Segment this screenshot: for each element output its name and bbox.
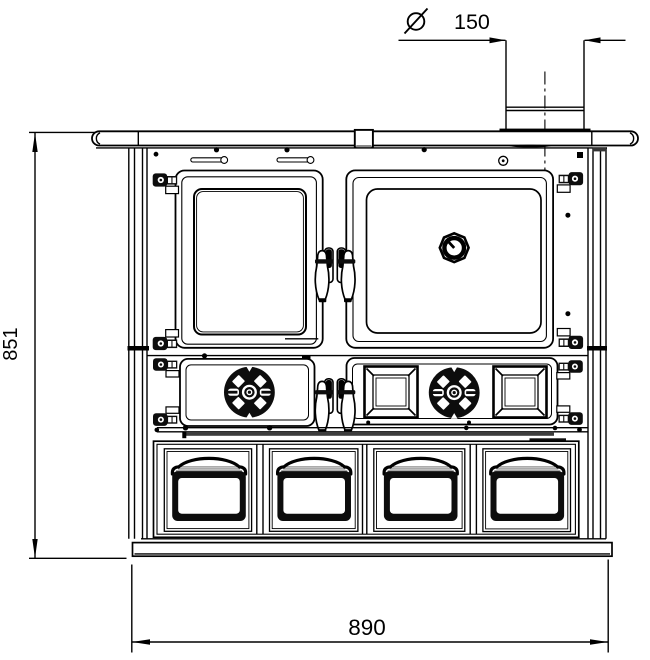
svg-text:851: 851 — [0, 327, 22, 360]
svg-text:150: 150 — [454, 10, 490, 34]
svg-text:890: 890 — [348, 615, 386, 640]
